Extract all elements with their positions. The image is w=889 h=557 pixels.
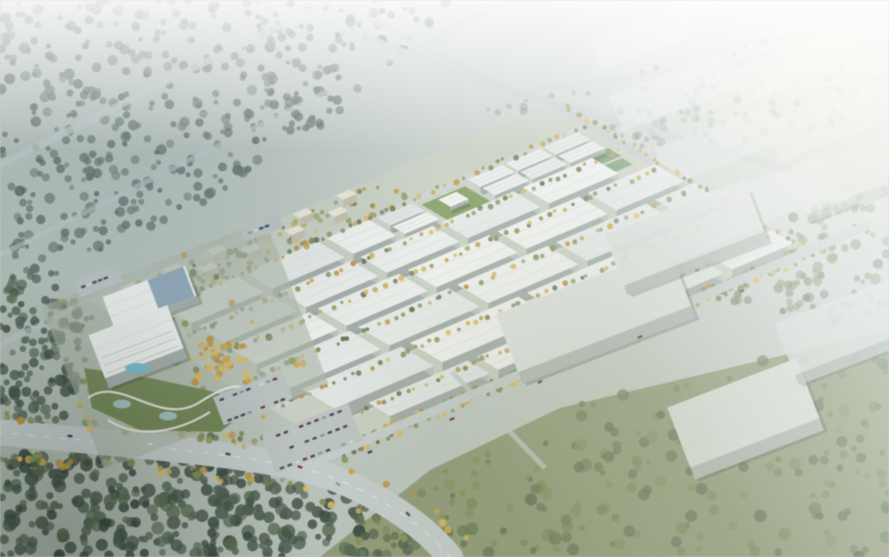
atmosphere-overlays: [0, 0, 889, 557]
aerial-rendering: [0, 0, 889, 557]
top-fog: [0, 0, 889, 150]
scene-svg: [0, 0, 889, 557]
